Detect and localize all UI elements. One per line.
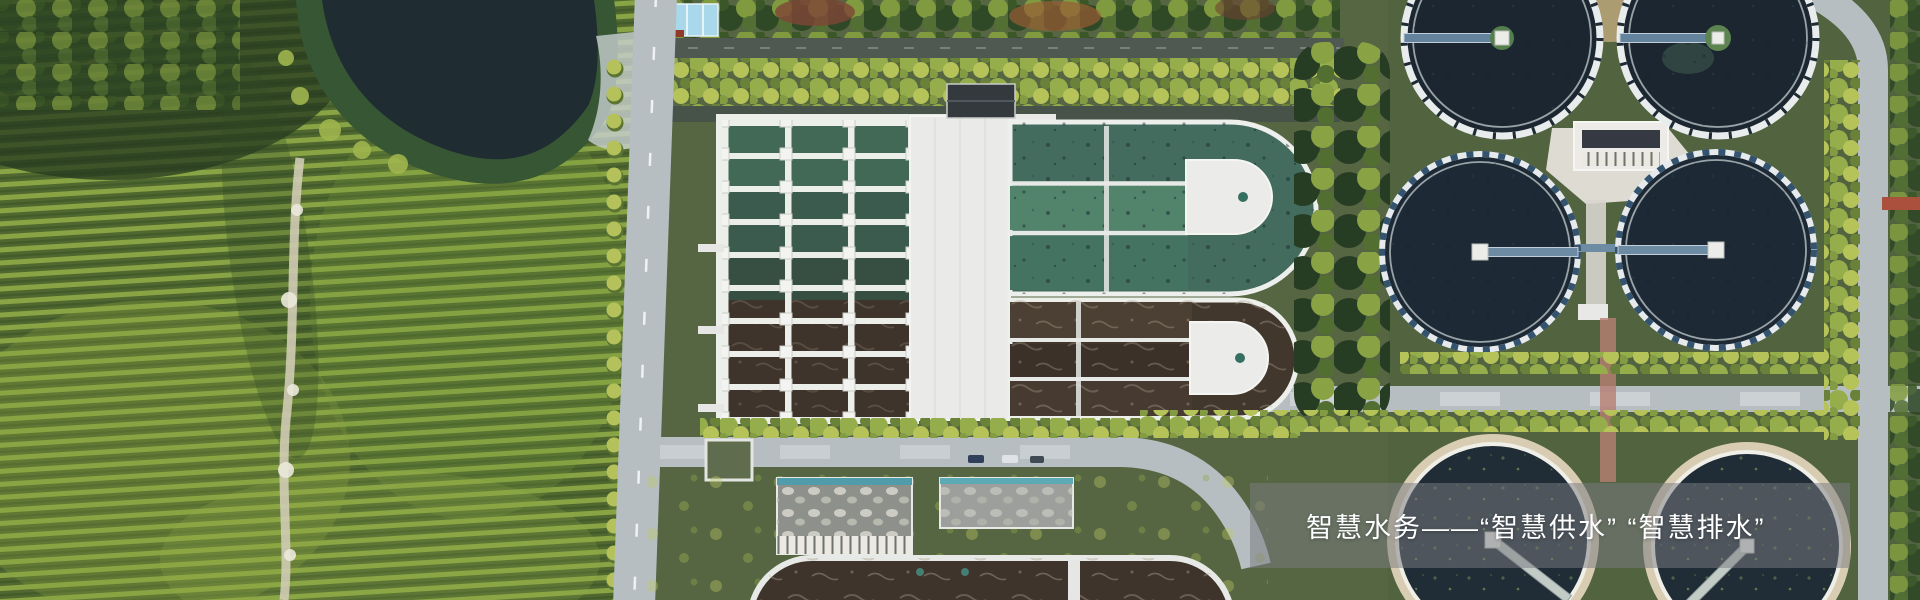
hero-headline: 智慧水务——“智慧供水” “智慧排水” <box>1306 506 1765 545</box>
hero-caption-banner: 智慧水务——“智慧供水” “智慧排水” <box>1250 483 1850 568</box>
hero-banner: 智慧水务——“智慧供水” “智慧排水” <box>0 0 1920 600</box>
